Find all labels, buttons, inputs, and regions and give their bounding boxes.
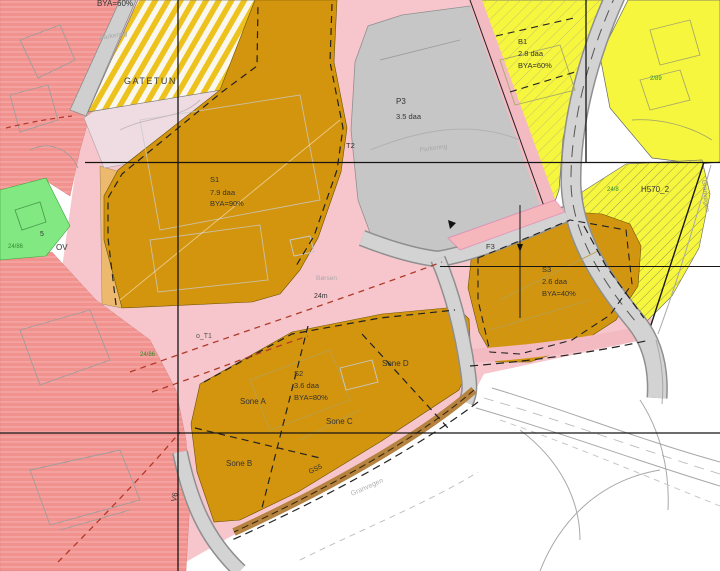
- v6-label: V6: [169, 492, 180, 503]
- b1-bya: BYA=60%: [518, 61, 552, 70]
- parcel-h570: 24/8: [607, 187, 619, 193]
- s3-bya: BYA=40%: [542, 289, 576, 298]
- sone-a-label: Sone A: [240, 397, 266, 406]
- zoning-plan-map[interactable]: BYA=60% Parkering GATETUN S1 7.9 daa BYA…: [0, 0, 720, 571]
- s1-code: S1: [210, 175, 219, 184]
- parcel-mid-left: 24/86: [140, 352, 156, 358]
- p3-area: 3.5 daa: [396, 112, 422, 121]
- s1-bya: BYA=90%: [210, 199, 244, 208]
- width-24m-label: 24m: [314, 293, 328, 300]
- marker-5-label: 5: [40, 231, 44, 238]
- sone-d-label: Sone D: [382, 359, 409, 368]
- borsen-label: Børsen: [316, 275, 337, 282]
- s2-bya: BYA=80%: [294, 393, 328, 402]
- ov-label: OV: [56, 243, 68, 252]
- t2-label: T2: [346, 141, 355, 150]
- sone-c-label: Sone C: [326, 417, 353, 426]
- p3-code: P3: [396, 97, 406, 106]
- parcel-corner: 2/89: [650, 76, 662, 82]
- s3-code: S3: [542, 265, 551, 274]
- gatetun-label: GATETUN: [124, 76, 177, 86]
- f3-label: F3: [486, 242, 495, 251]
- map-canvas: BYA=60% Parkering GATETUN S1 7.9 daa BYA…: [0, 0, 720, 571]
- s3-area: 2.6 daa: [542, 277, 568, 286]
- t1-label: o_T1: [196, 333, 212, 340]
- s1-area: 7.9 daa: [210, 188, 236, 197]
- s2-area: 3.6 daa: [294, 381, 320, 390]
- b1-area: 2.8 daa: [518, 49, 544, 58]
- s2-code: S2: [294, 369, 303, 378]
- sone-b-label: Sone B: [226, 459, 252, 468]
- clipped-top-label: BYA=60%: [97, 0, 133, 8]
- b1-code: B1: [518, 37, 527, 46]
- parcel-green-patch: 24/86: [8, 244, 24, 250]
- h570-code: H570_2: [641, 185, 670, 194]
